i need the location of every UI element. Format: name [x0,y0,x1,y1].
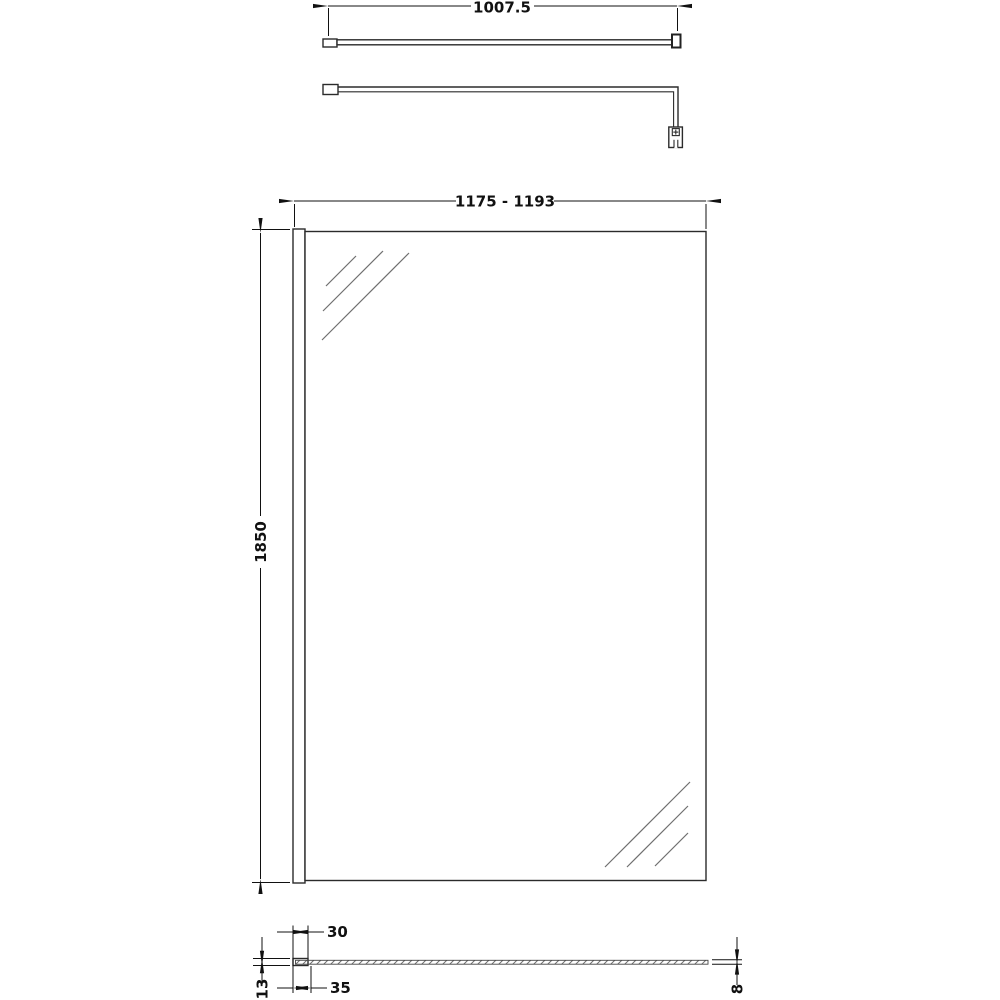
support-bar-top-view: 1007.5 [323,0,681,48]
glass-panel [305,232,706,881]
glass-section [296,960,709,964]
technical-drawing: 1007.5 1175 - 1193 1850 [0,0,1000,1000]
dimension-label: 13 [254,979,272,1000]
support-bar-length-dimension: 1007.5 [328,0,678,36]
support-bar-top [337,40,672,45]
panel-front-view: 1175 - 1193 1850 [252,193,706,884]
panel-width-dimension: 1175 - 1193 [294,193,706,230]
panel-section-view: 30 35 13 8 [253,923,747,999]
dimension-label: 30 [327,923,348,941]
clamp-slot [674,140,678,149]
dimension-label: 1007.5 [473,0,531,17]
technical-drawing-page: 1007.5 1175 - 1193 1850 [0,0,1000,1000]
dimension-label: 1175 - 1193 [455,193,555,211]
glass-thickness-dimension: 8 [712,937,747,994]
support-bar-side-outer [338,87,678,127]
wall-profile [293,229,305,883]
dimension-label: 8 [729,984,747,994]
profile-depth-dimension: 35 [277,966,351,997]
support-bar-side-view [323,85,682,149]
wall-bracket-side [323,85,338,95]
bar-end-clamp-top [672,35,681,48]
wall-bracket-top [323,39,337,47]
dimension-label: 35 [330,979,351,997]
panel-height-dimension: 1850 [252,230,290,883]
dimension-label: 1850 [252,521,270,563]
profile-thickness-dimension: 13 [253,937,290,999]
